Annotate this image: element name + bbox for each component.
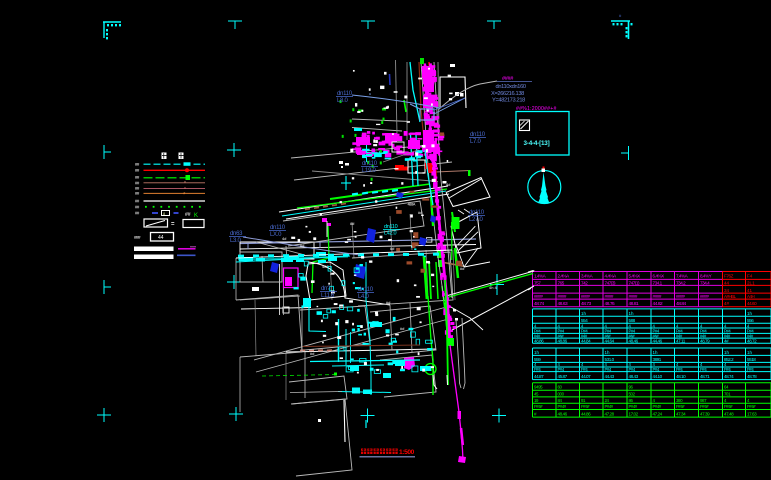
svg-text:####: #### (558, 294, 567, 299)
svg-text:P#4#: P#4# (534, 404, 543, 409)
svg-text:2L1: 2L1 (747, 280, 755, 285)
svg-text:P#4#: P#4# (724, 404, 733, 409)
svg-text:48.74: 48.74 (724, 374, 734, 379)
svg-text:###: ### (134, 235, 141, 240)
svg-text:L3.0: L3.0 (230, 238, 241, 244)
svg-text:48.86: 48.86 (534, 339, 544, 344)
svg-text:44.87: 44.87 (534, 374, 544, 379)
svg-text:5.4%X: 5.4%X (629, 274, 641, 279)
svg-text:1h: 1h (747, 350, 753, 355)
svg-text:dn63: dn63 (230, 231, 243, 237)
svg-text:1:500: 1:500 (399, 449, 415, 456)
svg-text:A#HBL: A#HBL (724, 294, 737, 299)
svg-text:P#4: P#4 (747, 367, 754, 372)
svg-text:44: 44 (724, 280, 730, 285)
svg-text:####: #### (581, 294, 590, 299)
svg-text:####: #### (629, 294, 638, 299)
svg-text:44.60: 44.60 (747, 301, 757, 306)
svg-text:34: 34 (724, 288, 730, 293)
svg-text:####: #### (534, 294, 543, 299)
svg-text:747(3): 747(3) (605, 280, 616, 285)
svg-text:48.86: 48.86 (558, 339, 568, 344)
svg-text:L4.0: L4.0 (358, 294, 369, 300)
svg-text:48.46: 48.46 (629, 339, 639, 344)
svg-text:P#4#: P#4# (629, 404, 638, 409)
svg-text:P#4: P#4 (724, 367, 731, 372)
svg-text:P#4: P#4 (629, 367, 636, 372)
svg-text:1h: 1h (724, 350, 730, 355)
svg-text:48.72: 48.72 (747, 339, 757, 344)
svg-text:701: 701 (724, 391, 731, 396)
svg-text:48.79: 48.79 (700, 339, 710, 344)
svg-text:554: 554 (581, 318, 588, 323)
svg-text:P#4: P#4 (700, 367, 707, 372)
svg-text:A4H: A4H (747, 294, 754, 299)
svg-text:####: #### (676, 294, 685, 299)
svg-text:P#4: P#4 (558, 367, 565, 372)
svg-text:44.82: 44.82 (653, 301, 664, 307)
svg-text:##: ## (310, 351, 315, 356)
svg-text:F4: F4 (747, 274, 753, 279)
svg-text:47.28: 47.28 (605, 411, 615, 416)
svg-text:P#4: P#4 (534, 367, 541, 372)
svg-text:4.4%A: 4.4%A (605, 274, 618, 279)
svg-text:48.10: 48.10 (676, 374, 686, 379)
svg-text:17.63: 17.63 (747, 411, 757, 416)
svg-text:##: ## (300, 243, 305, 248)
svg-text:X=266216.138: X=266216.138 (491, 91, 524, 97)
svg-text:48.81: 48.81 (629, 301, 640, 307)
svg-text:F76Z: F76Z (724, 274, 734, 279)
svg-text:4h 4: 4h 4 (489, 285, 498, 290)
svg-text:P#4: P#4 (605, 367, 612, 372)
svg-text:L8.0: L8.0 (337, 98, 348, 104)
svg-text:734.1: 734.1 (653, 280, 663, 285)
svg-text:7.4%A: 7.4%A (676, 274, 689, 279)
svg-text:1h: 1h (534, 350, 540, 355)
svg-text:####: #### (653, 294, 662, 299)
svg-text:L42.0: L42.0 (384, 231, 397, 237)
svg-text:588: 588 (629, 318, 636, 323)
svg-text:Y=482173.218: Y=482173.218 (492, 98, 525, 104)
svg-text:44.46: 44.46 (653, 339, 663, 344)
svg-text:dn110: dn110 (337, 91, 353, 97)
svg-text:17.02: 17.02 (629, 411, 639, 416)
svg-text:dn110xdn160: dn110xdn160 (496, 84, 526, 90)
svg-text:##: ## (350, 221, 355, 226)
svg-text:=: = (171, 222, 175, 228)
svg-text:48.73: 48.73 (581, 301, 592, 307)
svg-text:9495: 9495 (534, 385, 543, 390)
svg-text:48.74: 48.74 (534, 301, 545, 307)
svg-text:L7.0: L7.0 (470, 139, 481, 145)
svg-text:48.78: 48.78 (747, 374, 757, 379)
svg-text:##: ## (460, 266, 465, 271)
svg-text:742: 742 (581, 280, 588, 285)
svg-text:8.4%Y: 8.4%Y (700, 274, 712, 279)
svg-text:757: 757 (534, 280, 541, 285)
svg-text:47.11: 47.11 (676, 339, 686, 344)
svg-text:P#4#: P#4# (581, 404, 590, 409)
svg-text:3-4-4-[13]: 3-4-4-[13] (524, 140, 550, 147)
svg-text:dn110: dn110 (362, 161, 378, 167)
svg-text:44.10: 44.10 (653, 374, 663, 379)
svg-text:1h: 1h (581, 311, 587, 316)
svg-text:488A: 488A (408, 203, 416, 207)
svg-text:48.76: 48.76 (605, 301, 616, 307)
svg-text:LX.0: LX.0 (270, 232, 282, 238)
svg-text:734.2: 734.2 (676, 280, 686, 285)
svg-text:556: 556 (747, 318, 754, 323)
svg-text:dn110: dn110 (469, 210, 485, 216)
svg-text:44.84: 44.84 (581, 339, 591, 344)
svg-text:dn110: dn110 (270, 225, 286, 231)
svg-text:##: ## (400, 326, 405, 331)
svg-text:P#4#: P#4# (558, 404, 567, 409)
svg-text:4#: 4# (724, 301, 730, 306)
svg-text:734.4: 734.4 (700, 280, 710, 285)
svg-text:####: #### (605, 294, 614, 299)
svg-text:dn110: dn110 (384, 224, 398, 230)
svg-text:P#4#: P#4# (605, 404, 614, 409)
svg-text:44.43: 44.43 (605, 374, 615, 379)
svg-text:L11.6: L11.6 (321, 293, 335, 299)
svg-text:48.63: 48.63 (558, 301, 569, 307)
svg-text:48.46: 48.46 (558, 411, 568, 416)
svg-text:##: ## (386, 300, 391, 305)
svg-text:##: ## (390, 246, 395, 251)
svg-text:45.87: 45.87 (558, 374, 568, 379)
svg-text:##: ## (418, 210, 423, 215)
svg-text:1h: 1h (629, 311, 635, 316)
svg-text:####: #### (700, 294, 709, 299)
svg-text:K: K (194, 213, 198, 219)
svg-text:47.24: 47.24 (653, 411, 663, 416)
svg-text:44: 44 (158, 235, 164, 241)
svg-text:4#: 4# (446, 182, 451, 187)
svg-text:dn110: dn110 (358, 287, 374, 293)
svg-text:6.4%X: 6.4%X (653, 274, 665, 279)
svg-text:u: u (369, 91, 371, 96)
svg-text:##: ## (185, 212, 191, 218)
svg-text:41: 41 (747, 288, 753, 293)
svg-text:747(1): 747(1) (629, 280, 640, 285)
svg-text:dn?: dn? (321, 286, 331, 292)
svg-text:1h: 1h (747, 311, 753, 316)
svg-text:000: 000 (558, 391, 565, 396)
svg-text:48.71: 48.71 (700, 374, 710, 379)
svg-text:L27.0: L27.0 (469, 217, 483, 223)
svg-text:502: 502 (629, 391, 636, 396)
svg-text:4#: 4# (282, 236, 287, 241)
svg-text:47.39: 47.39 (700, 411, 710, 416)
svg-text:P#4: P#4 (676, 367, 683, 372)
svg-text:390: 390 (676, 398, 683, 403)
svg-text:dn110: dn110 (470, 132, 486, 138)
svg-text:47.48: 47.48 (724, 411, 734, 416)
svg-text:1h: 1h (605, 350, 611, 355)
svg-text:48.43: 48.43 (629, 374, 639, 379)
svg-text:987: 987 (700, 398, 707, 403)
svg-text:44.86: 44.86 (581, 411, 591, 416)
svg-text:44.07: 44.07 (581, 374, 591, 379)
svg-text:##: ## (330, 271, 335, 276)
svg-text:2.4%A: 2.4%A (558, 274, 571, 279)
svg-text:P#4: P#4 (653, 367, 660, 372)
svg-text:765: 765 (558, 280, 565, 285)
svg-text:47.34: 47.34 (676, 411, 686, 416)
svg-text:P#4#: P#4# (700, 404, 709, 409)
svg-text:P#4: P#4 (581, 367, 588, 372)
svg-text:44.64: 44.64 (605, 339, 615, 344)
svg-text:48.84: 48.84 (676, 301, 687, 307)
svg-text:L19.0: L19.0 (362, 168, 376, 174)
svg-text:P#4#: P#4# (747, 404, 756, 409)
svg-text:P#4#: P#4# (653, 404, 662, 409)
svg-text:1.4%A: 1.4%A (534, 274, 547, 279)
svg-text:3.4%A: 3.4%A (581, 274, 594, 279)
svg-text:1h: 1h (653, 350, 659, 355)
svg-text:P#4#: P#4# (676, 404, 685, 409)
